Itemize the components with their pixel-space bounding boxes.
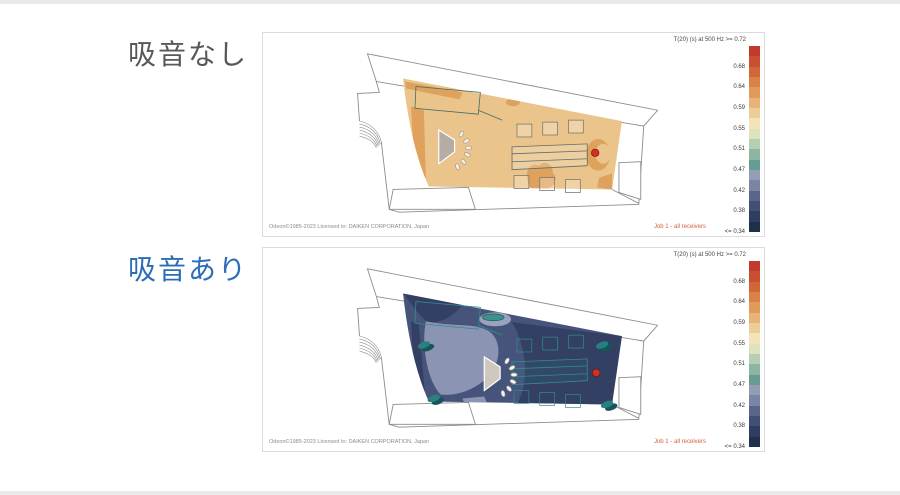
job-info-text: Job 1 - all receivers bbox=[654, 224, 706, 230]
legend-title: T(20) (s) at 500 Hz >= 0.72 bbox=[674, 37, 746, 43]
copyright-text: Odeon©1985-2023 Licensed to: DAIKEN CORP… bbox=[269, 224, 429, 230]
colorbar-segment bbox=[749, 261, 760, 271]
colorbar-segment bbox=[749, 211, 760, 221]
colorbar-segment bbox=[749, 77, 760, 87]
colorbar-segment bbox=[749, 98, 760, 108]
colorbar-segment bbox=[749, 406, 760, 416]
colorbar-segment bbox=[749, 375, 760, 385]
colorbar-segment bbox=[749, 191, 760, 201]
floor-platform bbox=[389, 402, 475, 424]
colorbar-tick-label: 0.68 bbox=[733, 64, 745, 70]
colorbar-bottom-label: <= 0.34 bbox=[725, 444, 745, 450]
colorbar-tick-label: 0.38 bbox=[733, 423, 745, 429]
colorbar-segment bbox=[749, 385, 760, 395]
receiver-dot bbox=[592, 369, 600, 377]
left-wall-edge bbox=[381, 142, 389, 209]
colorbar: 0.680.640.590.550.510.470.420.38<= 0.34 bbox=[714, 46, 760, 232]
right-wall-opening bbox=[619, 377, 641, 415]
colorbar-gradient bbox=[749, 46, 760, 232]
colorbar-tick-label: 0.55 bbox=[733, 126, 745, 132]
colorbar-segment bbox=[749, 149, 760, 159]
left-wall-edge bbox=[381, 357, 389, 424]
colorbar-tick-label: 0.59 bbox=[733, 105, 745, 111]
page-top-edge bbox=[0, 0, 900, 4]
colorbar-segment bbox=[749, 139, 760, 149]
absorber-disc bbox=[482, 314, 504, 321]
colorbar-segment bbox=[749, 302, 760, 312]
colorbar-segment bbox=[749, 437, 760, 447]
simulation-panel-no-absorption: T(20) (s) at 500 Hz >= 0.72 0.680.640.59… bbox=[262, 32, 765, 237]
left-wall bbox=[358, 297, 380, 337]
colorbar: 0.680.640.590.550.510.470.420.38<= 0.34 bbox=[714, 261, 760, 447]
copyright-text: Odeon©1985-2023 Licensed to: DAIKEN CORP… bbox=[269, 439, 429, 445]
colorbar-segment bbox=[749, 416, 760, 426]
colorbar-segment bbox=[749, 46, 760, 56]
colorbar-segment bbox=[749, 282, 760, 292]
colorbar-segment bbox=[749, 292, 760, 302]
colorbar-segment bbox=[749, 87, 760, 97]
colorbar-tick-label: 0.42 bbox=[733, 188, 745, 194]
right-wall-opening bbox=[619, 162, 641, 200]
panel-label-with-absorption: 吸音あり bbox=[128, 248, 248, 288]
room-acoustic-map-no-absorption bbox=[263, 33, 764, 236]
dining-table bbox=[512, 144, 587, 170]
colorbar-tick-label: 0.64 bbox=[733, 84, 745, 90]
colorbar-tick-label: 0.42 bbox=[733, 403, 745, 409]
colorbar-tick-label: 0.68 bbox=[733, 279, 745, 285]
colorbar-segment bbox=[749, 395, 760, 405]
colorbar-tick-labels: 0.680.640.590.550.510.470.420.38<= 0.34 bbox=[714, 261, 745, 447]
colorbar-segment bbox=[749, 323, 760, 333]
dining-table bbox=[512, 359, 587, 385]
colorbar-segment bbox=[749, 426, 760, 436]
colorbar-bottom-label: <= 0.34 bbox=[725, 229, 745, 235]
receiver-dot bbox=[591, 149, 599, 157]
colorbar-tick-label: 0.47 bbox=[733, 167, 745, 173]
curved-wall-hatching bbox=[360, 336, 382, 363]
colorbar-gradient bbox=[749, 261, 760, 447]
colorbar-segment bbox=[749, 364, 760, 374]
colorbar-segment bbox=[749, 160, 760, 170]
colorbar-segment bbox=[749, 222, 760, 232]
colorbar-tick-label: 0.55 bbox=[733, 341, 745, 347]
colorbar-tick-label: 0.47 bbox=[733, 382, 745, 388]
colorbar-tick-label: 0.64 bbox=[733, 299, 745, 305]
room-acoustic-map-with-absorption bbox=[263, 248, 764, 451]
colorbar-segment bbox=[749, 201, 760, 211]
colorbar-segment bbox=[749, 344, 760, 354]
colorbar-segment bbox=[749, 108, 760, 118]
legend-title: T(20) (s) at 500 Hz >= 0.72 bbox=[674, 252, 746, 258]
colorbar-tick-label: 0.38 bbox=[733, 208, 745, 214]
colorbar-segment bbox=[749, 67, 760, 77]
colorbar-tick-label: 0.51 bbox=[733, 146, 745, 152]
colorbar-segment bbox=[749, 333, 760, 343]
colorbar-segment bbox=[749, 118, 760, 128]
floor-platform bbox=[389, 187, 475, 209]
left-wall bbox=[358, 82, 380, 122]
curved-wall-hatching bbox=[360, 121, 382, 148]
colorbar-tick-label: 0.51 bbox=[733, 361, 745, 367]
colorbar-tick-labels: 0.680.640.590.550.510.470.420.38<= 0.34 bbox=[714, 46, 745, 232]
job-info-text: Job 1 - all receivers bbox=[654, 439, 706, 445]
page-bottom-edge bbox=[0, 491, 900, 495]
colorbar-segment bbox=[749, 180, 760, 190]
colorbar-segment bbox=[749, 313, 760, 323]
colorbar-tick-label: 0.59 bbox=[733, 320, 745, 326]
figure-canvas: 吸音なし bbox=[0, 0, 900, 495]
colorbar-segment bbox=[749, 354, 760, 364]
panel-label-no-absorption: 吸音なし bbox=[128, 33, 248, 73]
colorbar-segment bbox=[749, 129, 760, 139]
colorbar-segment bbox=[749, 56, 760, 66]
simulation-panel-with-absorption: T(20) (s) at 500 Hz >= 0.72 0.680.640.59… bbox=[262, 247, 765, 452]
colorbar-segment bbox=[749, 271, 760, 281]
colorbar-segment bbox=[749, 170, 760, 180]
